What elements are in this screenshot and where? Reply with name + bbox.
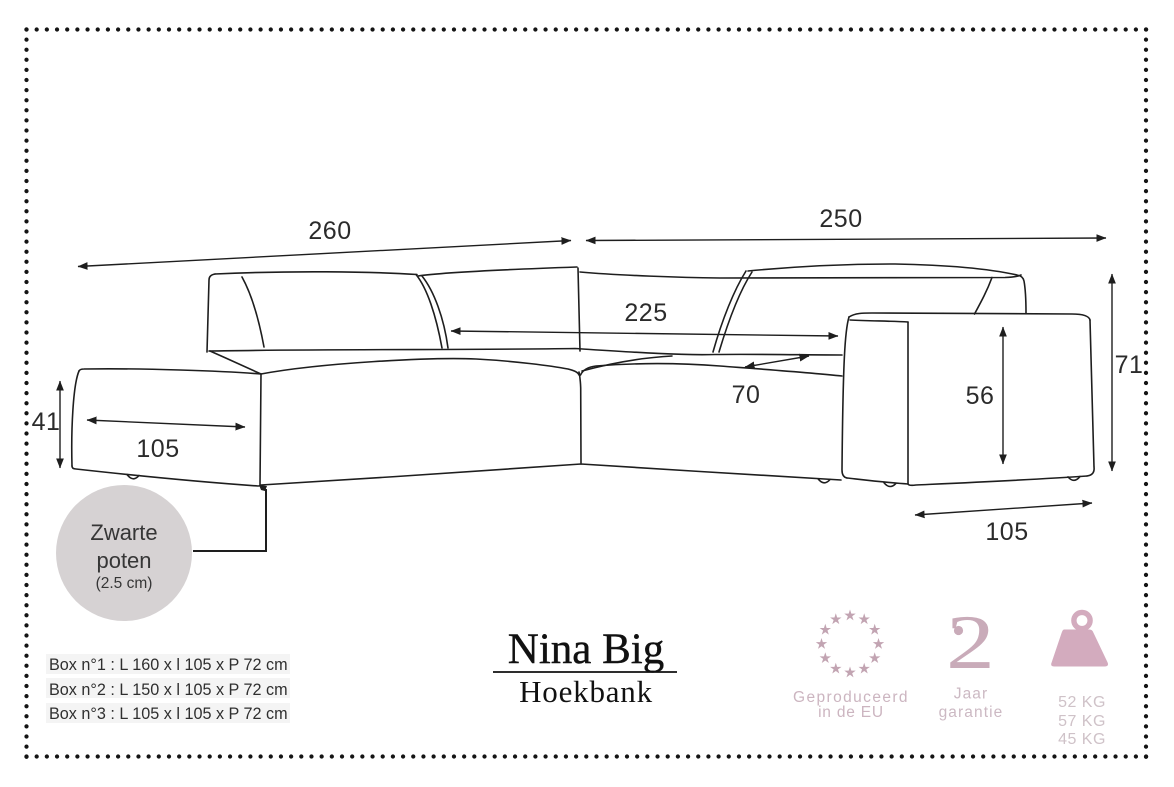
svg-text:56: 56	[966, 382, 995, 410]
svg-text:Jaar: Jaar	[954, 686, 989, 703]
svg-text:70: 70	[732, 381, 761, 409]
svg-text:Box n°3 : L 105 x l 105 x P 72: Box n°3 : L 105 x l 105 x P 72 cm	[49, 705, 288, 723]
svg-text:garantie: garantie	[939, 704, 1004, 721]
svg-text:Box n°2 : L 150 x l 105 x P 72: Box n°2 : L 150 x l 105 x P 72 cm	[49, 681, 288, 699]
svg-text:52 KG: 52 KG	[1058, 694, 1106, 711]
svg-text:71: 71	[1115, 351, 1144, 379]
svg-text:45 KG: 45 KG	[1058, 731, 1106, 748]
svg-text:Box n°1 : L 160 x l 105 x P 72: Box n°1 : L 160 x l 105 x P 72 cm	[49, 656, 288, 674]
svg-text:250: 250	[819, 205, 862, 233]
svg-text:Nina Big: Nina Big	[508, 626, 664, 673]
svg-text:225: 225	[624, 299, 667, 327]
svg-text:2: 2	[946, 601, 995, 686]
svg-text:Zwarte: Zwarte	[90, 520, 157, 545]
svg-text:105: 105	[136, 435, 179, 463]
svg-text:105: 105	[985, 518, 1028, 546]
svg-text:poten: poten	[96, 548, 151, 573]
svg-text:260: 260	[308, 217, 351, 245]
svg-text:41: 41	[32, 408, 61, 436]
svg-text:in de EU: in de EU	[818, 704, 884, 721]
svg-text:(2.5 cm): (2.5 cm)	[96, 575, 153, 592]
svg-text:Hoekbank: Hoekbank	[519, 674, 653, 709]
svg-text:57 KG: 57 KG	[1058, 713, 1106, 730]
